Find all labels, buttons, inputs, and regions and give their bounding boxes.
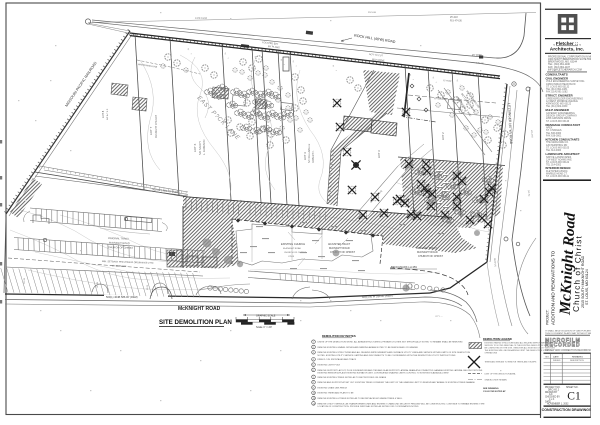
svg-text:C1: C1 bbox=[567, 391, 581, 403]
svg-text:LOT 8: LOT 8 bbox=[101, 110, 105, 118]
svg-text:LOT 3: LOT 3 bbox=[377, 150, 381, 158]
svg-text:REMOVE EXISTING & TREES NOTED: REMOVE EXISTING & TREES NOTED AS TO BE R… bbox=[318, 397, 404, 400]
svg-text:N/F DALLAVALLE: N/F DALLAVALLE bbox=[308, 143, 311, 163]
svg-text:McKNIGHT ROAD: McKNIGHT ROAD bbox=[417, 251, 438, 254]
svg-text:OPERATIONS: OPERATIONS bbox=[485, 352, 498, 355]
svg-text:ORIGINAL TRACT: ORIGINAL TRACT bbox=[416, 247, 437, 250]
svg-text:McKNIGHT CHURCH: McKNIGHT CHURCH bbox=[155, 115, 158, 138]
svg-text:LIMIT OF THE DEMOLITION AREA: LIMIT OF THE DEMOLITION AREA bbox=[485, 372, 517, 375]
svg-text:25'-018: 25'-018 bbox=[450, 17, 458, 19]
svg-text:REMOVE EXISTING GRAVEL DRIVES: REMOVE EXISTING GRAVEL DRIVES AND PARKIN… bbox=[318, 346, 419, 349]
svg-text:McKNIGHT ROAD: McKNIGHT ROAD bbox=[178, 306, 221, 312]
svg-text:LOCATION OF CONSTRUCTION. PROV: LOCATION OF CONSTRUCTION. PROVIDE DISPOS… bbox=[318, 405, 419, 408]
svg-text:N/F A.T.S.F.: N/F A.T.S.F. bbox=[106, 108, 109, 120]
svg-text:#2515: #2515 bbox=[288, 256, 295, 258]
svg-text:SITE DEMOLITION PLAN: SITE DEMOLITION PLAN bbox=[159, 319, 232, 326]
svg-text:CONSTRUCTION DRAWINGS: CONSTRUCTION DRAWINGS bbox=[542, 408, 592, 412]
svg-text:REMOVE AND SUPPORT AT SET OUT.: REMOVE AND SUPPORT AT SET OUT. EXISTING … bbox=[318, 381, 476, 384]
svg-text:145.04: 145.04 bbox=[97, 281, 99, 288]
svg-text:REVIEW AND CORRECTION RECORD N: REVIEW AND CORRECTION RECORD NO. 02 bbox=[545, 349, 597, 352]
svg-text:LOT 7: LOT 7 bbox=[149, 126, 153, 135]
svg-text:GRAPHIC SCALE: GRAPHIC SCALE bbox=[256, 314, 276, 317]
svg-text:SERVICE TO NOTED REMOVAL OF TH: SERVICE TO NOTED REMOVAL OF THE EXISTING… bbox=[485, 344, 550, 347]
svg-text:NOVEMBER 1, 2002: NOVEMBER 1, 2002 bbox=[547, 404, 569, 406]
svg-text:C2.02 FOR NOTED AT: C2.02 FOR NOTED AT bbox=[483, 390, 506, 393]
svg-text:GRAVEL DRIVE REMAIN: GRAVEL DRIVE REMAIN bbox=[485, 378, 508, 381]
svg-text:ROBERT F.: ROBERT F. bbox=[312, 150, 315, 163]
svg-text:REMOVE UTILITY SERVICE. AS TRA: REMOVE UTILITY SERVICE. AS TRANSFORMER L… bbox=[318, 402, 486, 405]
svg-text:98.00: 98.00 bbox=[147, 284, 149, 290]
svg-text:ADJUSTED TRACT: ADJUSTED TRACT bbox=[328, 243, 351, 246]
svg-text:SHEET NO.: SHEET NO. bbox=[566, 387, 579, 389]
svg-text:TREES AND SHRUBS TO REMOVE TRE: TREES AND SHRUBS TO REMOVE TREES AND STU… bbox=[485, 361, 537, 364]
svg-text:McKNIGHT ROAD: McKNIGHT ROAD bbox=[283, 247, 301, 250]
svg-text:DEMOLITION KEYNOTES: DEMOLITION KEYNOTES bbox=[322, 334, 356, 338]
svg-text:257-010: 257-010 bbox=[368, 12, 377, 14]
svg-text:PROJECT:: PROJECT: bbox=[546, 309, 550, 325]
svg-text:100.02: 100.02 bbox=[24, 277, 26, 284]
svg-text:EXISTING TREES AND PLANT TO BE: EXISTING TREES AND PLANT TO BE bbox=[318, 392, 355, 395]
svg-text:97: 97 bbox=[187, 48, 189, 50]
svg-text:THE EXISTING WELL BE REGARDING: THE EXISTING WELL BE REGARDING FIRST THE… bbox=[485, 349, 551, 352]
svg-text:Architects, Inc.: Architects, Inc. bbox=[550, 46, 584, 52]
svg-text:N/F NANCY: N/F NANCY bbox=[198, 141, 202, 155]
svg-text:BE COMPLETED BY THE SITE . REM: BE COMPLETED BY THE SITE . REMOVER ALL E… bbox=[485, 347, 556, 350]
svg-text:NO.: NO. bbox=[546, 356, 550, 358]
svg-text:ADDITION AND RENOVATIONS TO: ADDITION AND RENOVATIONS TO bbox=[551, 250, 556, 325]
svg-text:DATE: DATE bbox=[553, 355, 559, 358]
svg-text:ISSUED: ISSUED bbox=[553, 360, 561, 362]
svg-text:REMOVE EXISTING TREES NOTED AS: REMOVE EXISTING TREES NOTED AS TO BE PRO… bbox=[318, 376, 387, 379]
svg-text:Scale 1" = 20': Scale 1" = 20' bbox=[256, 325, 272, 329]
svg-text:McKNIGHT ROAD: McKNIGHT ROAD bbox=[329, 247, 350, 250]
svg-text:2515 SOUTH McKNIGHT ROAD: 2515 SOUTH McKNIGHT ROAD bbox=[581, 255, 585, 308]
svg-text:EXISTING CHURCH: EXISTING CHURCH bbox=[281, 242, 305, 246]
svg-text:DEMOLITION LEGEND: DEMOLITION LEGEND bbox=[483, 337, 512, 341]
svg-text:ST. LOUIS MO 63141: ST. LOUIS MO 63141 bbox=[546, 175, 570, 178]
svg-text:EXISTING CHAIN LINK FENCE: EXISTING CHAIN LINK FENCE bbox=[318, 386, 348, 389]
svg-text:EXISTING LIGHT POLE: EXISTING LIGHT POLE bbox=[318, 365, 341, 367]
svg-text:97: 97 bbox=[224, 53, 226, 55]
svg-text:97: 97 bbox=[332, 65, 334, 67]
svg-text:97: 97 bbox=[432, 77, 434, 79]
svg-text:97: 97 bbox=[292, 60, 294, 62]
svg-text:NOTED. EXISTING UTILITY SERVIC: NOTED. EXISTING UTILITY SERVICE CAPPING … bbox=[318, 354, 456, 357]
svg-text:, Fletcher :: ,: , Fletcher :: , bbox=[553, 41, 580, 46]
svg-text:FREE R.O.W. FRONTAGES AND TRAC: FREE R.O.W. FRONTAGES AND TRACK bbox=[318, 358, 357, 361]
svg-text:LIMITS OF THE DEMOLITION WORK.: LIMITS OF THE DEMOLITION WORK. ALL AREAS… bbox=[318, 341, 464, 344]
svg-text:ST. LOUIS, MO 63124: ST. LOUIS, MO 63124 bbox=[585, 269, 589, 305]
svg-text:REMOVE EXISTING STRUCTURES AND: REMOVE EXISTING STRUCTURES AND ALL RELAT… bbox=[318, 351, 471, 354]
svg-text:SEE DRAWING: SEE DRAWING bbox=[483, 387, 499, 390]
svg-text:1370'-19/32: 1370'-19/32 bbox=[195, 18, 208, 20]
svg-text:97: 97 bbox=[280, 59, 282, 61]
svg-text:97: 97 bbox=[456, 80, 458, 82]
svg-text:L. JAMESON: L. JAMESON bbox=[202, 139, 206, 155]
svg-text:REMARKS: REMARKS bbox=[572, 355, 583, 358]
svg-text:LOT 4: LOT 4 bbox=[303, 152, 307, 160]
svg-text:500(L) 404B 586.00' (R&M): 500(L) 404B 586.00' (R&M) bbox=[106, 295, 138, 299]
svg-text:LOT 6: LOT 6 bbox=[193, 143, 197, 152]
svg-text:CITY —: CITY — bbox=[435, 316, 444, 318]
svg-text:DESCRIPTION: DESCRIPTION bbox=[570, 360, 584, 362]
svg-text:LOT 2: LOT 2 bbox=[441, 132, 445, 140]
svg-text:CHURCH OF CHRIST: CHURCH OF CHRIST bbox=[418, 255, 443, 258]
svg-text:EXISTING REMOVE A PLACE EXIST: EXISTING REMOVE A PLACE EXISTING ELEVATO… bbox=[318, 372, 449, 375]
svg-text:REMOVE SUPPORT LAYOUT, PLUS FO: REMOVE SUPPORT LAYOUT, PLUS FOUNDATIONS … bbox=[318, 369, 483, 372]
svg-text:INFO@FLETCHERARCH.COM: INFO@FLETCHERARCH.COM bbox=[548, 68, 582, 71]
svg-text:EXISTING PAVING STRUCTURES AND: EXISTING PAVING STRUCTURES AND ALL RELAT… bbox=[485, 341, 554, 344]
svg-text:FLV 474.36: FLV 474.36 bbox=[450, 21, 462, 23]
